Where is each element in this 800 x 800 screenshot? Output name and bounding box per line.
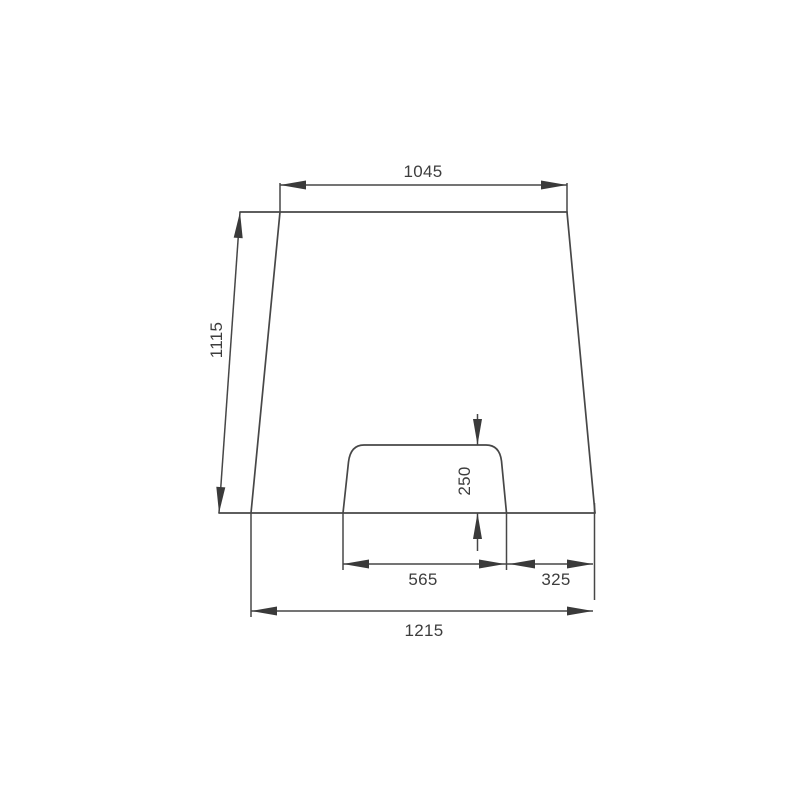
dim-notch-offset: 325 bbox=[509, 503, 595, 600]
drawing-page: 1045 1115 250 565 bbox=[0, 0, 800, 800]
dim-notch-height-label: 250 bbox=[455, 466, 474, 495]
dim-side-height-label: 1115 bbox=[207, 322, 226, 359]
notch-outline bbox=[343, 445, 507, 513]
dim-side-height: 1115 bbox=[207, 212, 243, 513]
dim-notch-height-arrow-down bbox=[473, 419, 482, 445]
dim-notch-width-label: 565 bbox=[408, 570, 437, 589]
dim-notch-height-arrow-up bbox=[473, 513, 482, 539]
dim-top-width-label: 1045 bbox=[403, 162, 442, 181]
panel-right-edge bbox=[567, 212, 595, 513]
dim-notch-width-arrow-right bbox=[479, 560, 505, 569]
dim-notch-height: 250 bbox=[455, 414, 482, 551]
dim-notch-offset-arrow-left bbox=[509, 560, 535, 569]
dim-side-height-arrow-bottom bbox=[216, 487, 225, 513]
dim-side-height-line bbox=[219, 212, 240, 513]
dim-notch-offset-arrow-right bbox=[567, 560, 593, 569]
panel-outline bbox=[219, 212, 595, 513]
dim-notch-width-arrow-left bbox=[343, 560, 369, 569]
technical-drawing-canvas: 1045 1115 250 565 bbox=[0, 0, 800, 800]
dim-bottom-width-arrow-right bbox=[567, 607, 593, 616]
dim-bottom-width-arrow-left bbox=[251, 607, 277, 616]
dim-top-width-arrow-right bbox=[541, 181, 567, 190]
panel-left-edge bbox=[251, 212, 280, 513]
dim-notch-offset-label: 325 bbox=[541, 570, 570, 589]
dim-top-width-arrow-left bbox=[280, 181, 306, 190]
dim-top-width: 1045 bbox=[280, 162, 567, 212]
dim-bottom-width-label: 1215 bbox=[404, 621, 443, 640]
dim-side-height-arrow-top bbox=[234, 212, 243, 238]
